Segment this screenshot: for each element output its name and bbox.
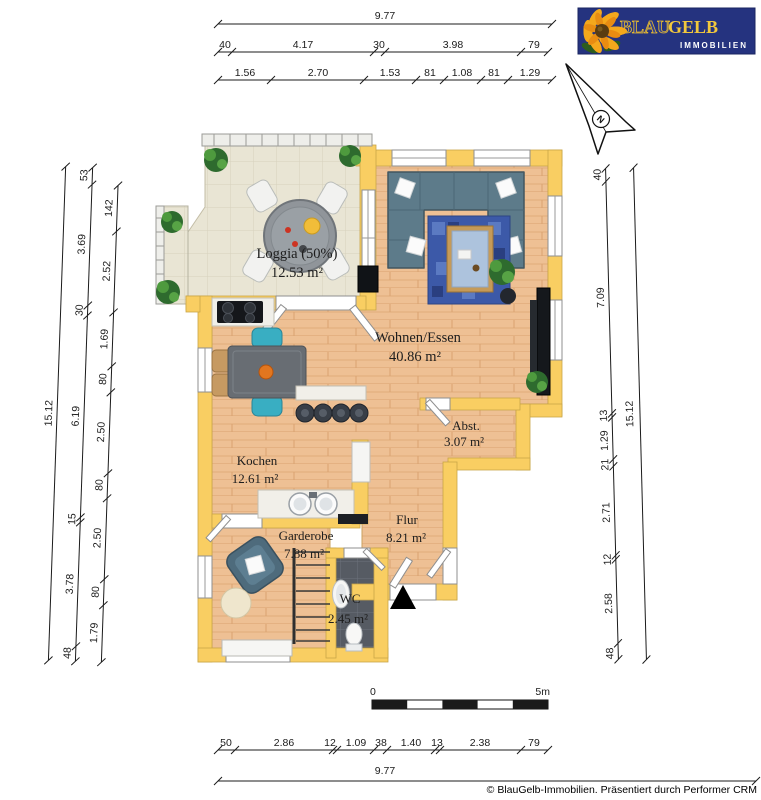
room-label-wohnen: Wohnen/Essen (375, 330, 462, 346)
dim-label: 142 (103, 199, 116, 217)
dim-label: 13 (431, 737, 443, 749)
dimensions-bottom (214, 746, 760, 785)
coffee-table (447, 226, 493, 292)
room-area-abst: 3.07 m² (444, 434, 484, 449)
brand-gelb: GELB (668, 17, 718, 37)
ottoman (221, 588, 251, 618)
kitchen-shelf (338, 514, 368, 524)
plant (526, 371, 548, 393)
scale-zero-label: 0 (370, 686, 376, 698)
floorplan-page: Loggia (50%) 12.53 m² Wohnen/Essen 40.86… (0, 0, 761, 800)
sideboard (222, 640, 292, 656)
dim-label: 1.29 (598, 430, 611, 451)
plant (489, 259, 515, 285)
plant (161, 211, 183, 233)
dim-label: 21 (599, 458, 611, 470)
room-label-garderobe: Garderobe (279, 528, 334, 543)
dimensions-right: 40 7.09 13 1.29 21 2.71 12 2.58 48 15.12 (591, 164, 650, 665)
room-label-flur: Flur (396, 512, 418, 527)
dim-label: 53 (78, 169, 90, 181)
brand-tagline: IMMOBILIEN (680, 41, 748, 50)
dim-label: 15 (66, 513, 78, 525)
dim-label: 30 (373, 39, 385, 51)
dim-label: 1.69 (98, 329, 111, 350)
plant (339, 145, 361, 167)
dimensions-top-labels: 9.77 40 4.17 30 3.98 79 1.56 2.70 1.53 8… (219, 10, 540, 79)
room-area-wc: 2.45 m² (328, 611, 368, 626)
cooktop-counter (212, 298, 274, 326)
dim-label: 40 (592, 169, 604, 181)
dim-label: 12 (324, 737, 336, 749)
footer-copyright: © BlauGelb-Immobilien. Präsentiert durch… (487, 784, 757, 796)
dim-label: 1.56 (235, 67, 256, 79)
kitchen-cabinet (352, 442, 370, 482)
dim-label: 1.79 (88, 622, 101, 643)
dim-label: 80 (93, 479, 105, 491)
dim-label: 1.29 (520, 67, 541, 79)
wc-toilet (346, 623, 362, 645)
dimensions-bottom-labels: 50 2.86 12 1.09 38 1.40 13 2.38 79 9.77 (220, 737, 540, 777)
dim-label: 1.08 (452, 67, 473, 79)
dim-label: 3.98 (443, 39, 464, 51)
dim-label: 80 (90, 586, 102, 598)
dim-label: 81 (424, 67, 436, 79)
dim-label: 2.38 (470, 737, 491, 749)
room-label-loggia: Loggia (50%) (257, 246, 338, 262)
dim-label: 48 (61, 647, 73, 659)
dim-label: 9.77 (375, 10, 396, 22)
dim-label: 4.17 (293, 39, 314, 51)
loggia-railing-top (202, 134, 372, 146)
north-arrow-icon: N (566, 64, 635, 154)
room-area-loggia: 12.53 m² (271, 265, 324, 281)
dimensions-left: 15.12 53 3.69 30 6.19 15 3.78 48 142 2.5… (34, 162, 122, 666)
dim-label: 48 (604, 647, 616, 659)
room-label-wc: WC (340, 591, 361, 606)
dim-label: 79 (528, 737, 540, 749)
dim-label: 2.50 (91, 527, 104, 548)
dim-label: 1.53 (380, 67, 401, 79)
dim-label: 79 (528, 39, 540, 51)
room-area-kochen: 12.61 m² (232, 471, 279, 486)
dim-label: 12 (602, 553, 614, 565)
room-label-abst: Abst. (452, 418, 480, 433)
dim-label: 3.69 (76, 234, 89, 255)
scale-bar: 0 5m (370, 686, 550, 709)
dim-label: 2.50 (95, 421, 108, 442)
room-area-wohnen: 40.86 m² (389, 349, 442, 365)
dim-label: 50 (220, 737, 232, 749)
dim-label: 2.70 (308, 67, 329, 79)
dim-label: 7.09 (595, 287, 608, 308)
room-area-garderobe: 7.88 m² (284, 546, 324, 561)
dim-label: 81 (488, 67, 500, 79)
plant (156, 280, 180, 304)
dim-label: 40 (219, 39, 231, 51)
dim-label: 2.58 (603, 593, 616, 614)
dim-label: 6.19 (70, 406, 83, 427)
sink-counter (258, 490, 354, 518)
dim-label: 15.12 (624, 400, 637, 427)
room-label-kochen: Kochen (237, 453, 278, 468)
brand-blau: BLAU (620, 17, 670, 37)
dim-label: 2.52 (101, 261, 114, 282)
dim-label: 2.71 (600, 502, 613, 523)
dim-label: 3.78 (64, 573, 77, 594)
dim-label: 80 (97, 373, 109, 385)
floorplan-drawing: Loggia (50%) 12.53 m² Wohnen/Essen 40.86… (0, 0, 761, 800)
dim-label: 13 (598, 409, 610, 421)
plant (204, 148, 228, 172)
dim-label: 38 (375, 737, 387, 749)
room-area-flur: 8.21 m² (386, 530, 426, 545)
dim-label: 9.77 (375, 765, 396, 777)
dim-label: 30 (73, 304, 85, 316)
dim-label: 2.86 (274, 737, 295, 749)
dim-label: 1.40 (401, 737, 422, 749)
dim-label: 15.12 (43, 400, 56, 427)
dim-label: 1.09 (346, 737, 367, 749)
scale-five-label: 5m (535, 686, 550, 698)
logo: BLAU GELB IMMOBILIEN (578, 7, 755, 55)
